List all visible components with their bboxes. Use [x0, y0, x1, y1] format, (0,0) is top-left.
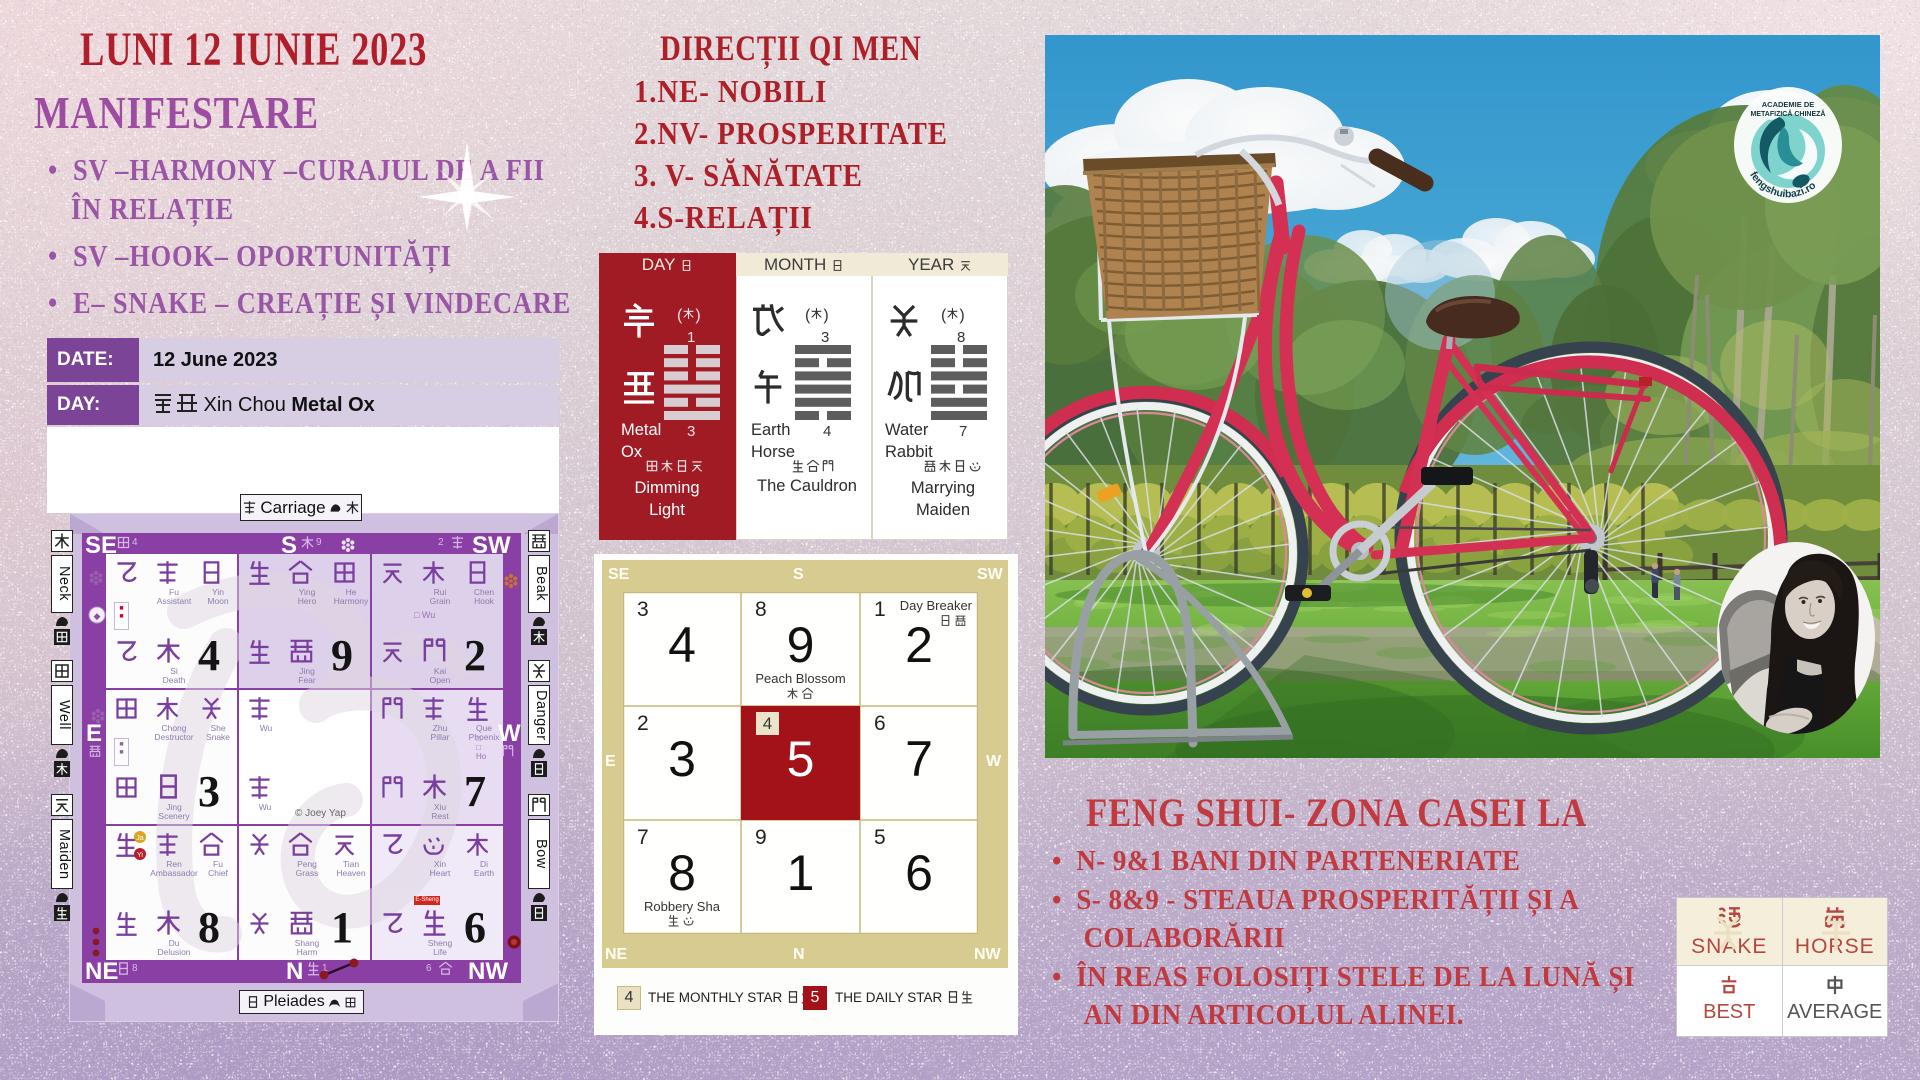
svg-text:METAFIZICĂ CHINEZĂ: METAFIZICĂ CHINEZĂ — [1751, 109, 1826, 118]
svg-text:ACADEMIE DE: ACADEMIE DE — [1762, 100, 1815, 109]
svg-text:Ja: Ja — [136, 835, 144, 842]
svg-text:Yi: Yi — [137, 852, 143, 859]
svg-text:◆: ◆ — [94, 611, 101, 621]
